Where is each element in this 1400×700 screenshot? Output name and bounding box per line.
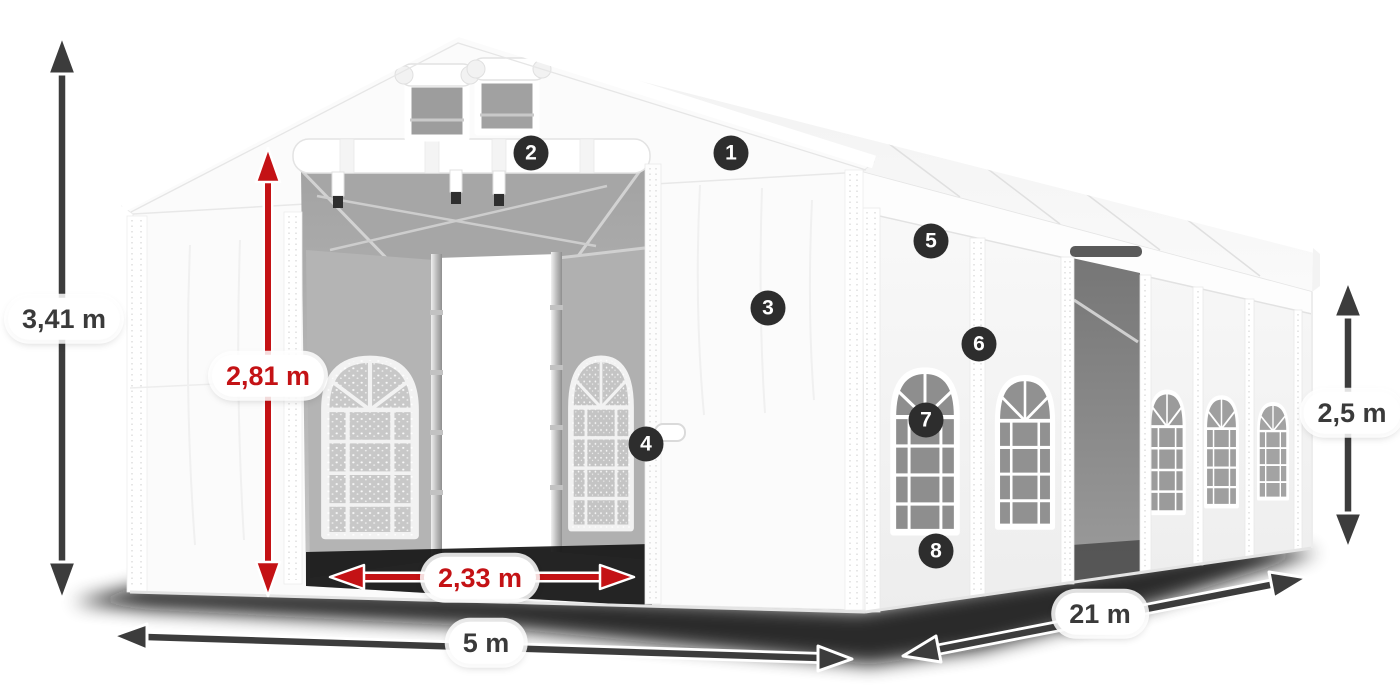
interior-window — [325, 359, 414, 535]
side-window — [1258, 404, 1287, 499]
dimension-label-side-wall-height: 2,5 m — [1303, 392, 1400, 434]
callout-marker-5: 5 — [914, 224, 949, 259]
side-window — [893, 371, 957, 533]
callout-marker-8: 8 — [919, 534, 954, 569]
see-through-gap — [437, 254, 558, 552]
callout-marker-1: 1 — [714, 136, 749, 171]
interior-window — [571, 359, 631, 528]
tent-illustration — [0, 0, 1400, 700]
side-window — [1206, 397, 1238, 506]
side-window — [1150, 392, 1184, 513]
callout-marker-7: 7 — [909, 403, 944, 438]
dimension-label-front-width: 5 m — [449, 622, 524, 664]
side-window — [997, 378, 1052, 527]
dimension-label-total-height: 3,41 m — [8, 298, 120, 340]
callout-marker-3: 3 — [751, 291, 786, 326]
callout-marker-4: 4 — [629, 427, 664, 462]
entrance-opening — [301, 164, 652, 606]
tent-dimension-diagram: 3,41 m 2,81 m 2,33 m 5 m 21 m 2,5 m 1 2 … — [0, 0, 1400, 700]
dimension-label-entrance-width: 2,33 m — [424, 557, 536, 599]
side-open-doorway — [1070, 246, 1142, 582]
dimension-label-side-length: 21 m — [1055, 593, 1145, 635]
dimension-label-entrance-height: 2,81 m — [212, 355, 324, 397]
callout-marker-2: 2 — [514, 136, 549, 171]
callout-marker-6: 6 — [962, 327, 997, 362]
